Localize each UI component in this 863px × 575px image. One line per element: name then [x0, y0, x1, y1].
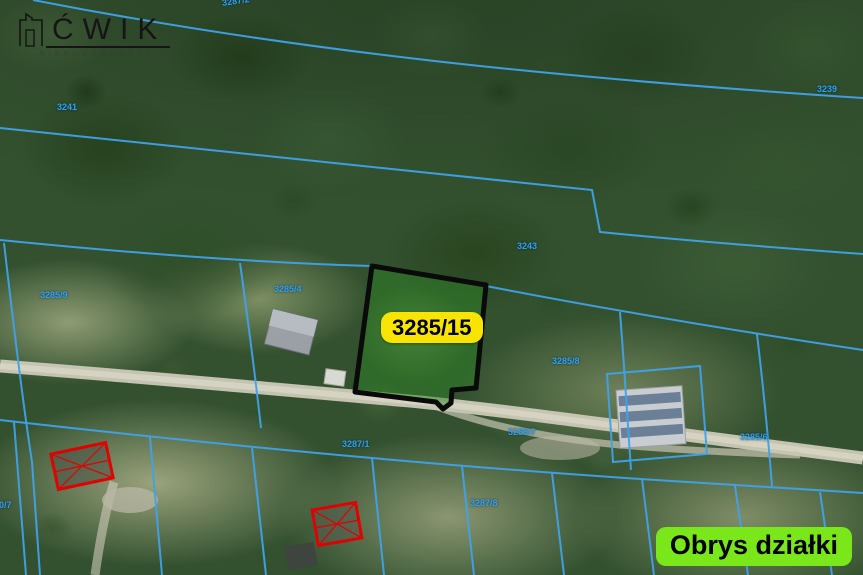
parcel-number-label: 3285/6: [740, 432, 768, 442]
brand-logo: ĆWIK NIERUCHOMOŚCI: [16, 10, 170, 58]
parcel-number-label: 3287/8: [470, 498, 498, 508]
parcel-number-label: 3287/1: [342, 439, 370, 449]
parcel-number-label: 3285/9: [40, 290, 68, 300]
parcel-number-label: 3290/7: [0, 500, 12, 510]
highlighted-parcel-tag: 3285/15: [381, 312, 483, 343]
brand-name: ĆWIK: [46, 14, 170, 49]
cadastral-overlay: [0, 0, 863, 575]
parcel-number-label: 3243: [517, 241, 537, 251]
building-outline-red: [51, 443, 362, 546]
plot-outline-badge: Obrys działki: [656, 527, 852, 566]
dark-roof-building: [284, 542, 318, 571]
parcel-number-label: 3285/7: [508, 427, 536, 437]
parcel-number-label: 3241: [57, 102, 77, 112]
parcel-number-label: 3239: [817, 84, 837, 94]
parcel-number-label: 3285/4: [274, 284, 302, 294]
small-shed: [324, 369, 346, 387]
brand-subtitle: NIERUCHOMOŚCI: [40, 51, 170, 58]
building-outline-icon: [16, 10, 46, 48]
parcel-number-label: 3285/8: [552, 356, 580, 366]
aerial-parcel-map: 3287/2 3241 3239 3243 3285/9 3285/4 3285…: [0, 0, 863, 575]
gray-roof-house: [264, 309, 317, 355]
